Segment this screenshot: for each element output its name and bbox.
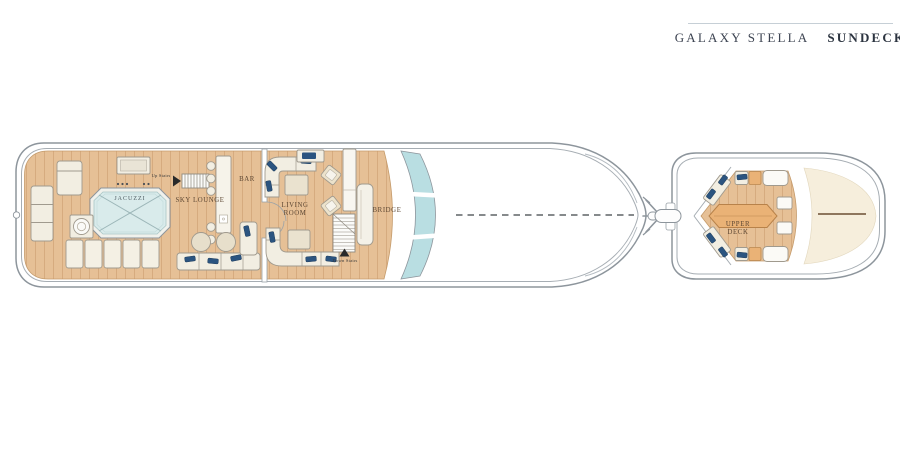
label-sky-lounge: SKY LOUNGE xyxy=(172,197,228,205)
stairs-down xyxy=(333,214,355,257)
label-upper-deck: UPPER DECK xyxy=(715,221,761,238)
jacuzzi xyxy=(90,183,170,238)
coffee-table xyxy=(285,175,308,195)
label-up-stairs: Up Stairs xyxy=(150,173,172,179)
sundeck-plan-page: GALAXY STELLA SUNDECK JACUZZI SKY LOUNGE… xyxy=(0,0,900,450)
sun-pads xyxy=(66,240,159,268)
shower-station xyxy=(70,215,93,238)
label-bar: BAR xyxy=(235,176,259,184)
header: GALAXY STELLA SUNDECK xyxy=(688,30,893,46)
yacht-name: GALAXY STELLA xyxy=(675,30,810,46)
stern-sofa xyxy=(31,186,53,241)
label-bridge: BRIDGE xyxy=(369,207,405,215)
label-jacuzzi: JACUZZI xyxy=(100,196,160,204)
lounge-chair xyxy=(57,161,82,195)
deck-cabinet xyxy=(117,157,150,174)
deck-name: SUNDECK xyxy=(827,30,900,46)
label-down-stairs: Down Stairs xyxy=(331,258,359,264)
tv-console xyxy=(297,150,324,162)
bridge-partition xyxy=(343,149,356,211)
bar-counter xyxy=(216,156,231,233)
deck-plan-drawing xyxy=(0,0,900,450)
header-rule xyxy=(688,23,893,24)
label-living-room: LIVING ROOM xyxy=(272,202,318,219)
stern-fitting xyxy=(13,212,19,218)
